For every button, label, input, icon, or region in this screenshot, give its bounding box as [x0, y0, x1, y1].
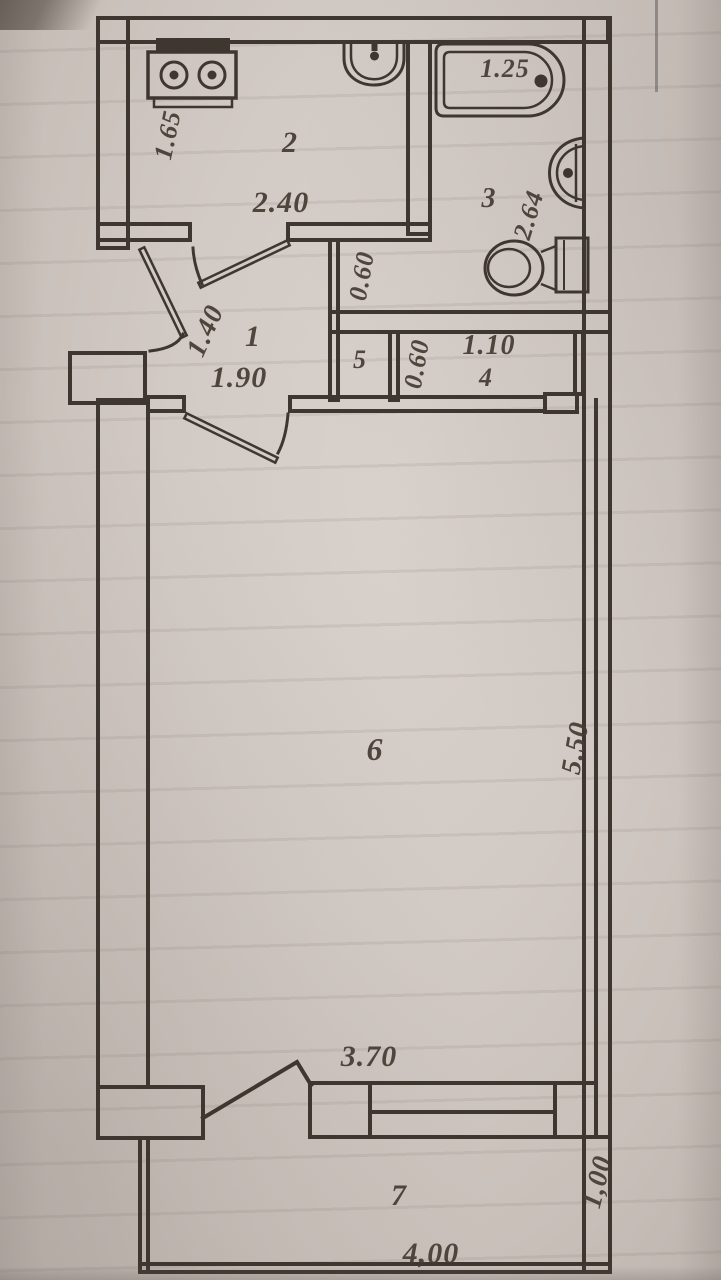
floor-plan-drawing [0, 0, 721, 1280]
dim-room2-width: 2.40 [253, 188, 310, 218]
washbasin-icon [550, 138, 585, 208]
wall-left-main [98, 400, 148, 1087]
kitchen-door-icon [193, 244, 286, 284]
window-band [203, 1062, 610, 1137]
dim-room7-width: 4,00 [403, 1239, 460, 1269]
wall-kitchen-bath-divider [408, 42, 430, 234]
wall-room6-top-left [148, 397, 184, 411]
kitchen-sink-icon [344, 42, 404, 85]
wall-bottom-left-block [98, 1087, 203, 1138]
wall-left-pilaster [70, 353, 145, 403]
doors [143, 244, 288, 459]
room2-number: 2 [282, 128, 298, 158]
window-pier [555, 1083, 596, 1137]
room1-number: 1 [245, 322, 261, 352]
wall-room4-right [575, 332, 583, 394]
wall-main-horizontal [330, 312, 610, 332]
wall-balcony-bottom [140, 1264, 610, 1272]
room3-number: 3 [482, 185, 497, 213]
toilet-icon [485, 238, 588, 295]
floor-plan-photo: 1.65 2 2.40 1.25 3 2.64 0.60 1.40 1 1.90… [0, 0, 721, 1280]
dim-room6-width: 3.70 [341, 1042, 398, 1072]
wall-closet-right [390, 332, 398, 400]
wall-left-kitchen [98, 18, 128, 248]
living-room-door-icon [188, 414, 288, 459]
room7-number: 7 [391, 1181, 407, 1211]
dim-room4-width: 1.10 [463, 332, 516, 360]
room5-number: 5 [353, 347, 367, 373]
dim-bathtub-length: 1.25 [480, 56, 530, 82]
wall-balcony-left [140, 1138, 148, 1272]
wall-kitchen-bottom-left [98, 224, 190, 240]
stove-icon [148, 38, 236, 107]
dim-room1-width: 1.90 [211, 363, 268, 393]
balcony-door-leaf-icon [203, 1062, 311, 1118]
wall-notch [545, 394, 577, 412]
room6-number: 6 [367, 733, 384, 765]
room4-number: 4 [479, 365, 493, 391]
entrance-door-icon [143, 251, 183, 351]
balcony-door-panel [310, 1083, 370, 1137]
